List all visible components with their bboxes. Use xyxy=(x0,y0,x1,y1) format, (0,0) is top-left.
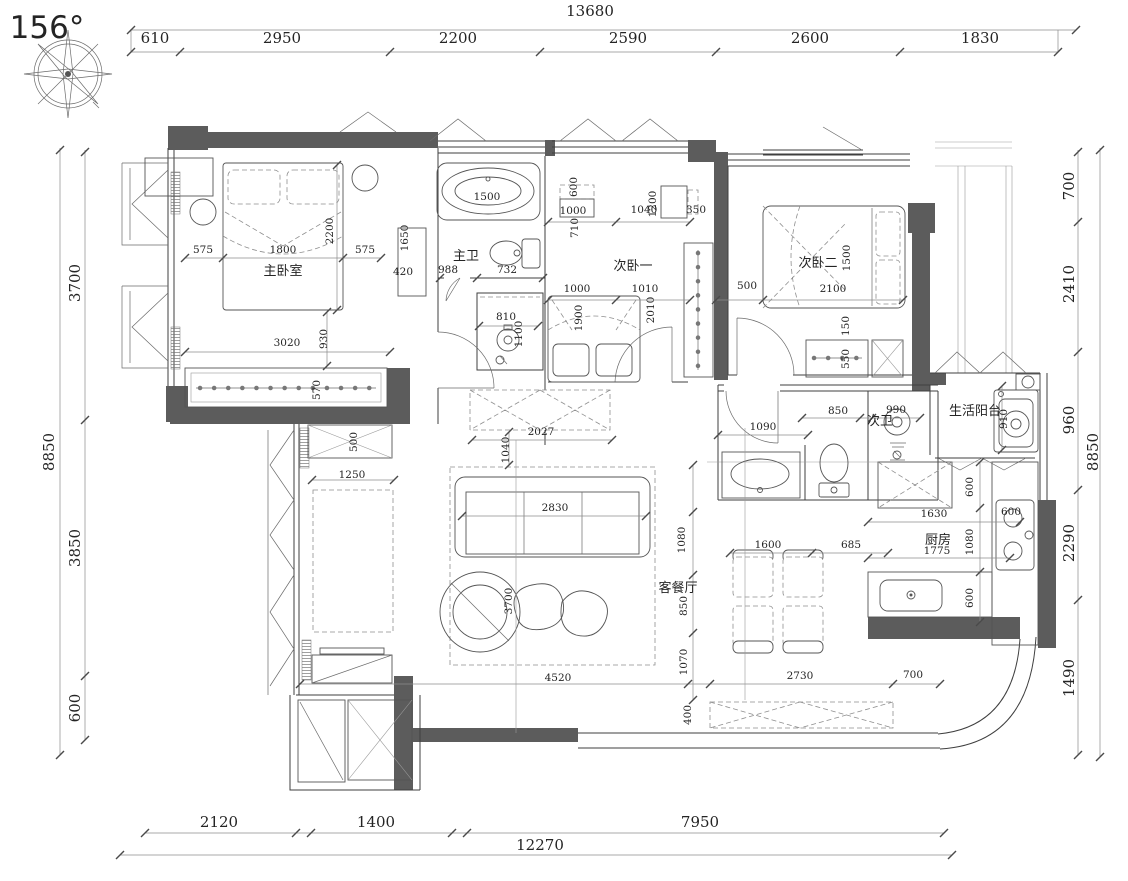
dimension-label: 850 xyxy=(678,596,690,616)
dimension-label: 13680 xyxy=(566,2,614,20)
room-label-master-bedroom: 主卧室 xyxy=(263,263,302,279)
dimension-label: 12270 xyxy=(516,836,564,854)
bed-second-bedroom-1 xyxy=(548,296,640,382)
dimension-label: 710 xyxy=(569,218,581,238)
room-label-living-dining: 客餐厅 xyxy=(658,580,697,596)
dimension-label: 400 xyxy=(682,705,694,725)
dimension-label: 1600 xyxy=(755,539,782,551)
dimension-label: 2600 xyxy=(791,29,829,47)
dimension-label: 500 xyxy=(348,432,360,452)
master-stool xyxy=(352,165,378,191)
dimension-label: 1630 xyxy=(921,508,948,520)
dimension-label: 685 xyxy=(841,539,861,551)
dimension-label: 550 xyxy=(840,349,852,369)
dimension-label: 1400 xyxy=(357,813,395,831)
dimension-label: 2730 xyxy=(787,670,814,682)
dimension-label: 500 xyxy=(737,280,757,292)
dimension-label: 420 xyxy=(393,266,413,278)
dimension-label: 1100 xyxy=(513,321,525,348)
dimension-label: 8850 xyxy=(1084,433,1102,471)
dimension-label: 850 xyxy=(828,405,848,417)
dimension-label: 1490 xyxy=(1060,659,1078,697)
closet-hall xyxy=(684,243,713,377)
balcony-sink xyxy=(1016,374,1040,390)
room-label-second-bedroom-2: 次卧二 xyxy=(798,255,837,271)
dimension-label: 700 xyxy=(903,669,923,681)
dimension-label: 4520 xyxy=(545,672,572,684)
dimension-label: 2410 xyxy=(1060,265,1078,303)
dimension-label: 1830 xyxy=(961,29,999,47)
dimension-label: 1010 xyxy=(632,283,659,295)
second-bedroom-1-door xyxy=(615,327,672,382)
dimension-label: 1800 xyxy=(270,244,297,256)
dimension-label: 1000 xyxy=(560,205,587,217)
dimension-label: 1070 xyxy=(678,649,690,676)
dimension-label: 1200 xyxy=(647,191,659,218)
dimension-label: 2200 xyxy=(324,218,336,245)
dimension-label: 570 xyxy=(311,380,323,400)
dimension-label: 600 xyxy=(964,477,976,497)
dimension-label: 2830 xyxy=(542,502,569,514)
dimension-label: 2590 xyxy=(609,29,647,47)
wardrobe-second-bedroom-2 xyxy=(806,340,903,377)
dimension-label: 2027 xyxy=(528,426,555,438)
dimension-label: 600 xyxy=(568,177,580,197)
dimension-label: 600 xyxy=(66,694,84,723)
dimension-label: 2950 xyxy=(263,29,301,47)
rug xyxy=(450,467,655,665)
room-label-service-balcony: 生活阳台 xyxy=(949,404,1001,419)
dimension-label: 1500 xyxy=(841,245,853,272)
dimension-label: 930 xyxy=(318,329,330,349)
room-label-second-bath: 次卫 xyxy=(867,413,893,429)
dimension-label: 1000 xyxy=(564,283,591,295)
room-label-master-bath: 主卫 xyxy=(453,249,479,264)
room-label-second-bedroom-1: 次卧一 xyxy=(613,258,652,274)
second-bedroom-2-door xyxy=(737,318,794,375)
dimension-label: 610 xyxy=(141,29,170,47)
dimension-label: 3700 xyxy=(66,264,84,302)
master-bath-door xyxy=(446,278,460,301)
floor-plan-drawing: 156°136806102950220025902600183088503700… xyxy=(0,0,1128,881)
master-wardrobe xyxy=(185,368,387,407)
dimension-label: 7950 xyxy=(681,813,719,831)
master-chair xyxy=(190,199,216,225)
dimension-label: 960 xyxy=(1060,406,1078,435)
dimension-label: 1900 xyxy=(573,305,585,332)
floor-plan-canvas: 156°136806102950220025902600183088503700… xyxy=(0,0,1128,881)
dimension-label: 3850 xyxy=(66,529,84,567)
dimension-ticks xyxy=(56,26,1104,859)
dimension-label: 600 xyxy=(964,588,976,608)
dimension-label: 8850 xyxy=(40,433,58,471)
dimension-label: 600 xyxy=(1001,506,1021,518)
dimension-label: 2200 xyxy=(439,29,477,47)
dimension-label: 2290 xyxy=(1060,524,1078,562)
corridor-cabinet xyxy=(470,390,610,430)
dimension-label: 3020 xyxy=(274,337,301,349)
compass-bearing: 156° xyxy=(10,10,85,46)
dimension-label: 700 xyxy=(1060,172,1078,201)
vanity-second-bath xyxy=(722,452,800,498)
fridge xyxy=(878,462,952,508)
dimension-label: 988 xyxy=(438,264,458,276)
dimension-label: 1090 xyxy=(750,421,777,433)
toilet-second-bath xyxy=(819,444,849,497)
bottom-storage-cabinet xyxy=(710,702,893,728)
dimension-label: 2100 xyxy=(820,283,847,295)
dimension-label: 1250 xyxy=(339,469,366,481)
dimension-label: 1080 xyxy=(676,527,688,554)
dimension-label: 2120 xyxy=(200,813,238,831)
dimension-label: 150 xyxy=(840,316,852,336)
dimension-label: 1080 xyxy=(964,529,976,556)
tatami-outline xyxy=(313,490,393,632)
dimension-label: 575 xyxy=(193,244,213,256)
tv-console xyxy=(312,648,392,683)
dimension-label: 1650 xyxy=(399,225,411,252)
room-label-kitchen: 厨房 xyxy=(925,532,951,548)
dimension-lines-layer xyxy=(60,30,1100,855)
dimension-label: 575 xyxy=(355,244,375,256)
dimension-label: 1040 xyxy=(500,437,512,464)
master-bedroom-door xyxy=(438,332,494,388)
dimension-label: 3700 xyxy=(503,588,515,615)
dimension-label: 1500 xyxy=(474,191,501,203)
dimension-label: 350 xyxy=(686,204,706,216)
dining-set xyxy=(733,550,823,653)
dimension-label: 2010 xyxy=(645,297,657,324)
dimension-label: 732 xyxy=(497,264,517,276)
